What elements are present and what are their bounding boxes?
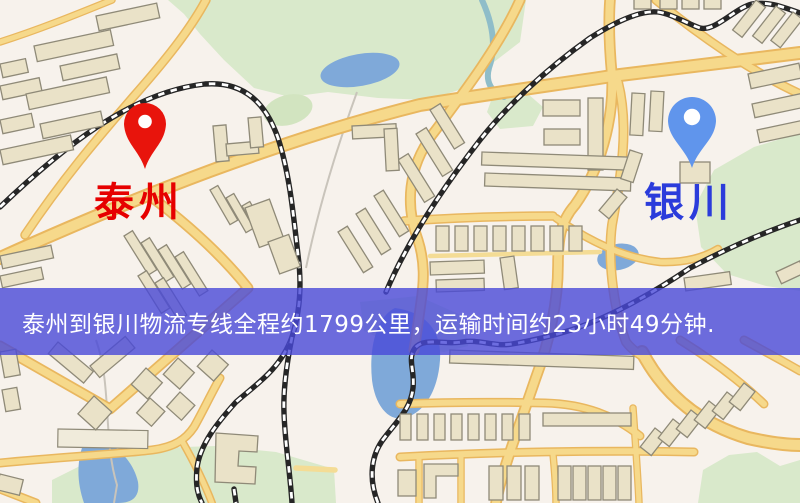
origin-city-label: 泰州 — [94, 183, 184, 223]
map-canvas — [0, 0, 800, 503]
red-pin-icon — [124, 103, 166, 169]
route-info-text: 泰州到银川物流专线全程约1799公里，运输时间约23小时49分钟. — [22, 305, 715, 339]
destination-city-label: 银川 — [644, 183, 734, 223]
blue-pin-icon — [668, 97, 716, 168]
route-info-banner: 泰州到银川物流专线全程约1799公里，运输时间约23小时49分钟. — [0, 288, 800, 355]
map-image: 泰州 银川 泰州到银川物流专线全程约1799公里，运输时间约23小时49分钟. — [0, 0, 800, 503]
